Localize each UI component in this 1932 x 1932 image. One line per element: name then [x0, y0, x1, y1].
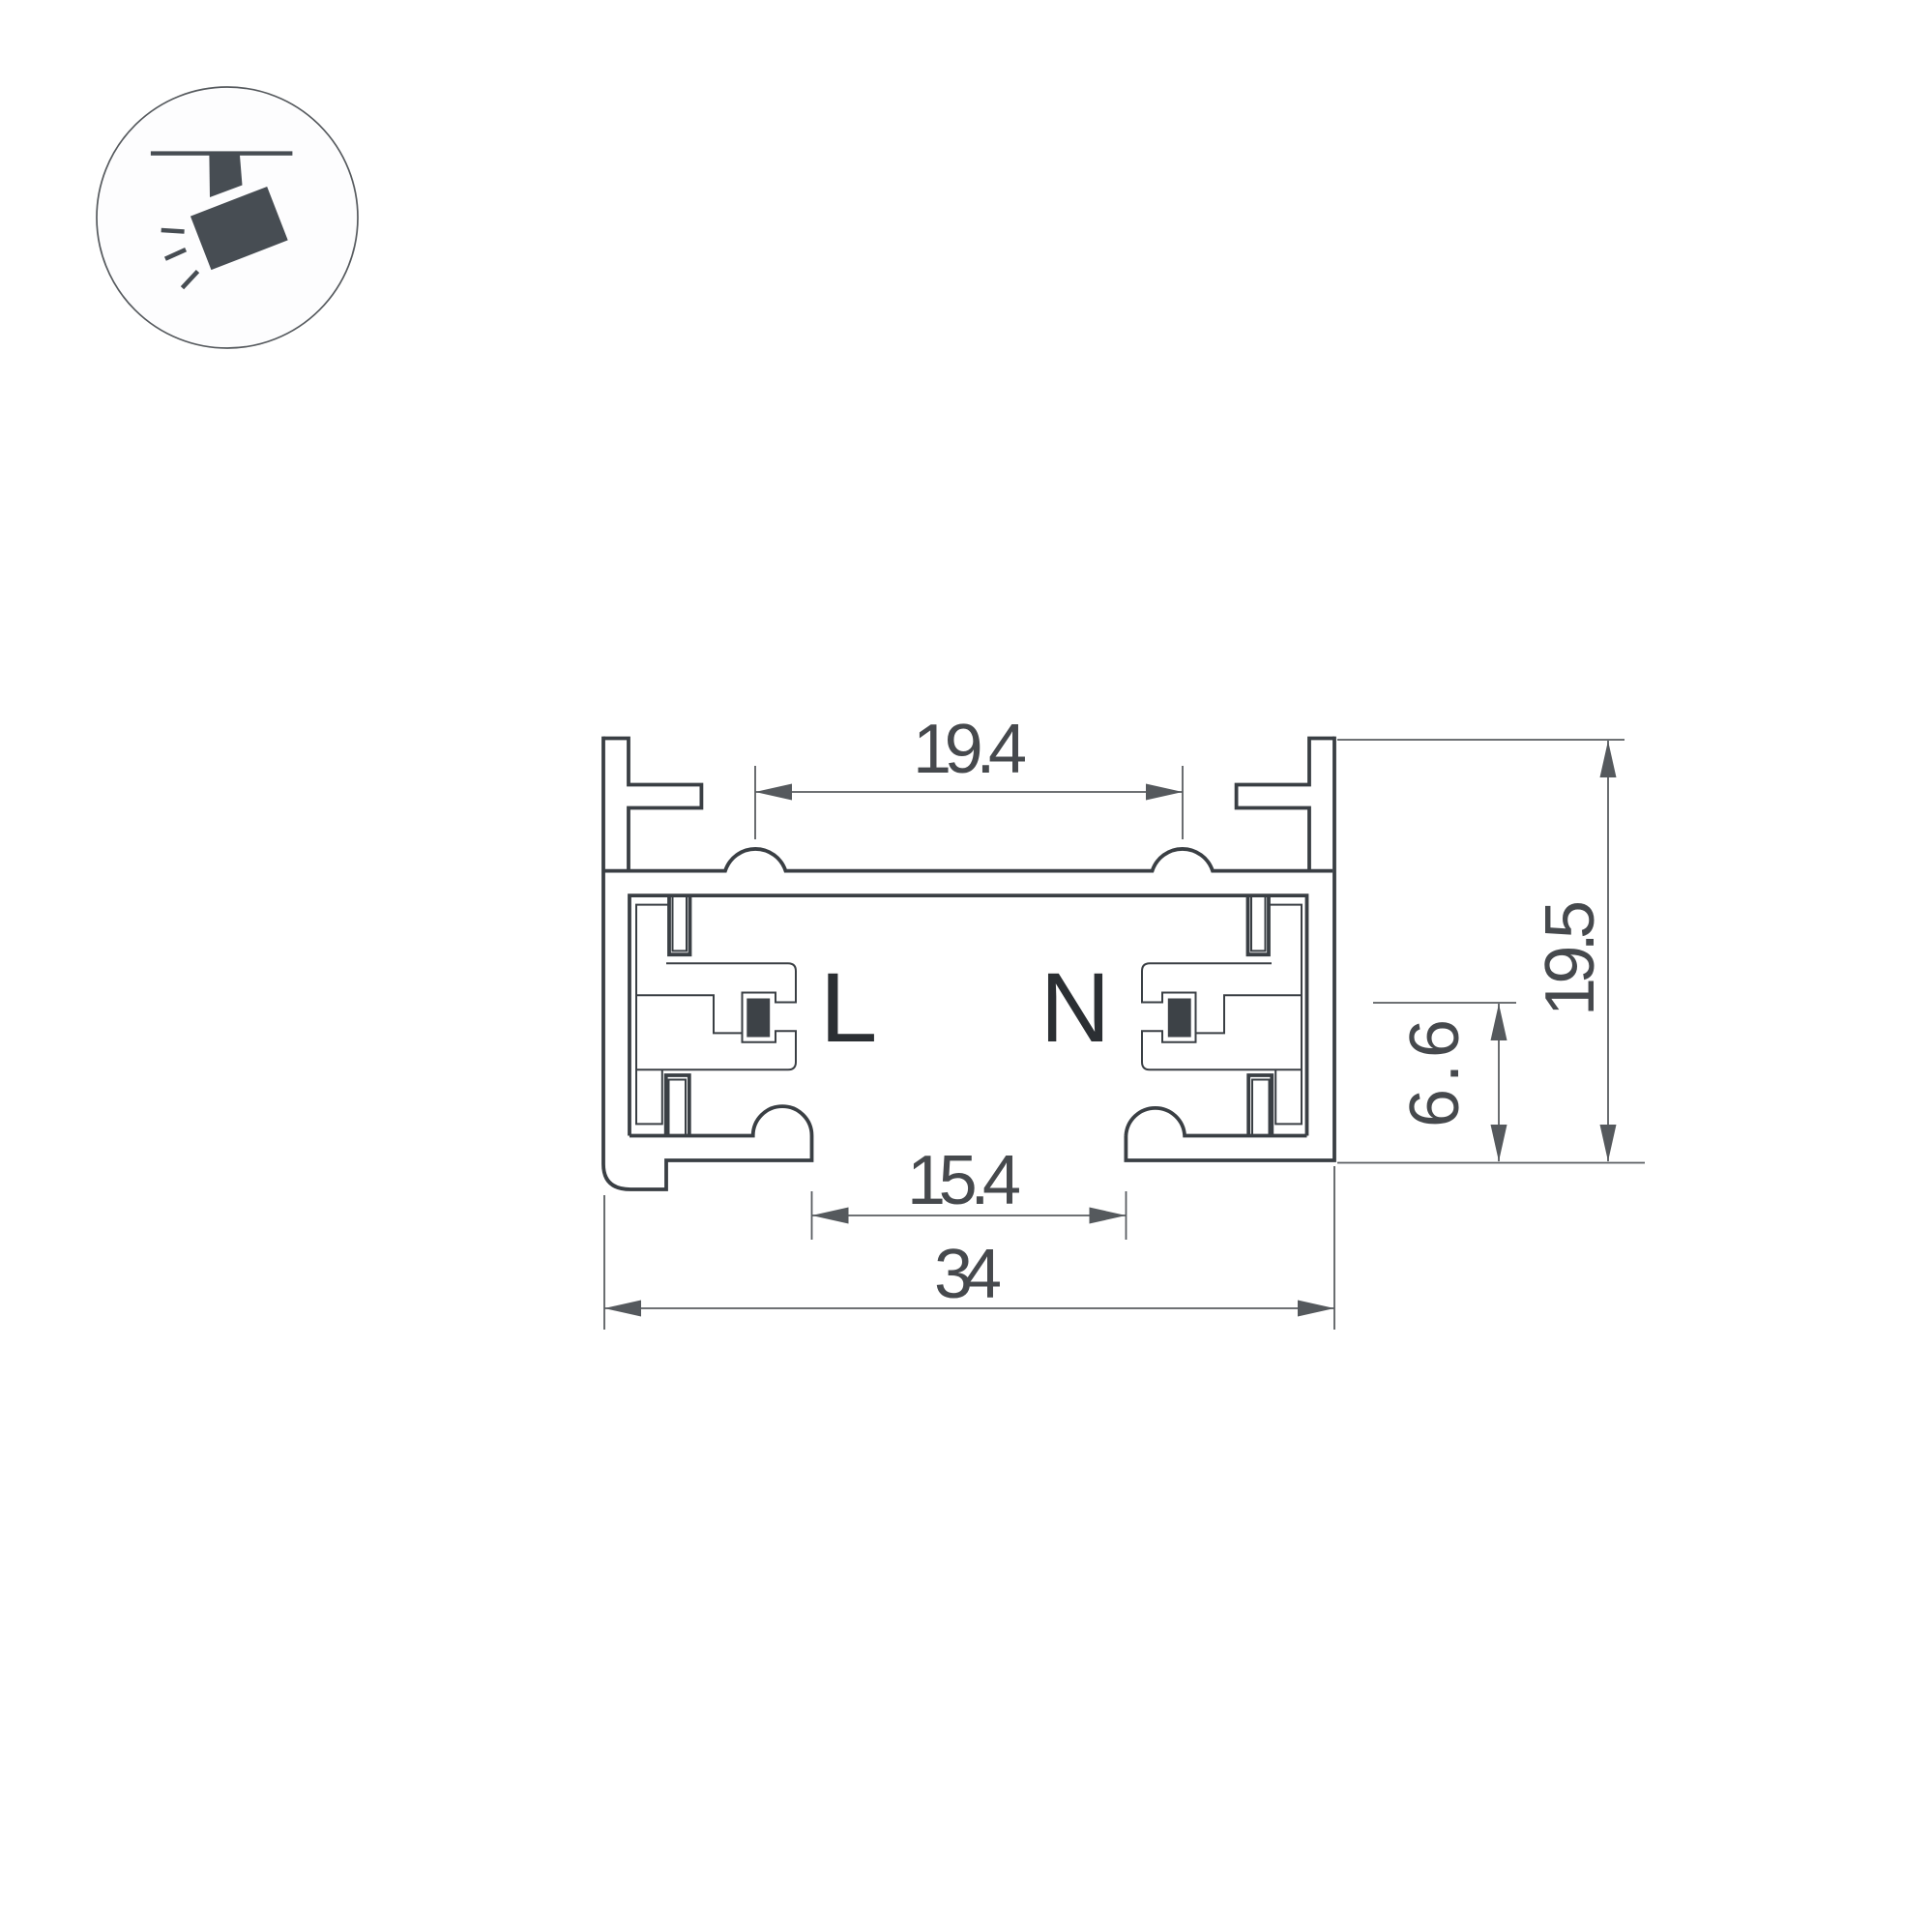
svg-text:34: 34: [934, 1236, 1002, 1313]
svg-text:15.4: 15.4: [907, 1142, 1021, 1219]
svg-text:19.4: 19.4: [913, 711, 1027, 788]
svg-text:6.6: 6.6: [1396, 1019, 1474, 1127]
svg-text:19.5: 19.5: [1532, 900, 1609, 1016]
svg-text:N: N: [1040, 952, 1111, 1063]
svg-text:L: L: [820, 952, 878, 1063]
